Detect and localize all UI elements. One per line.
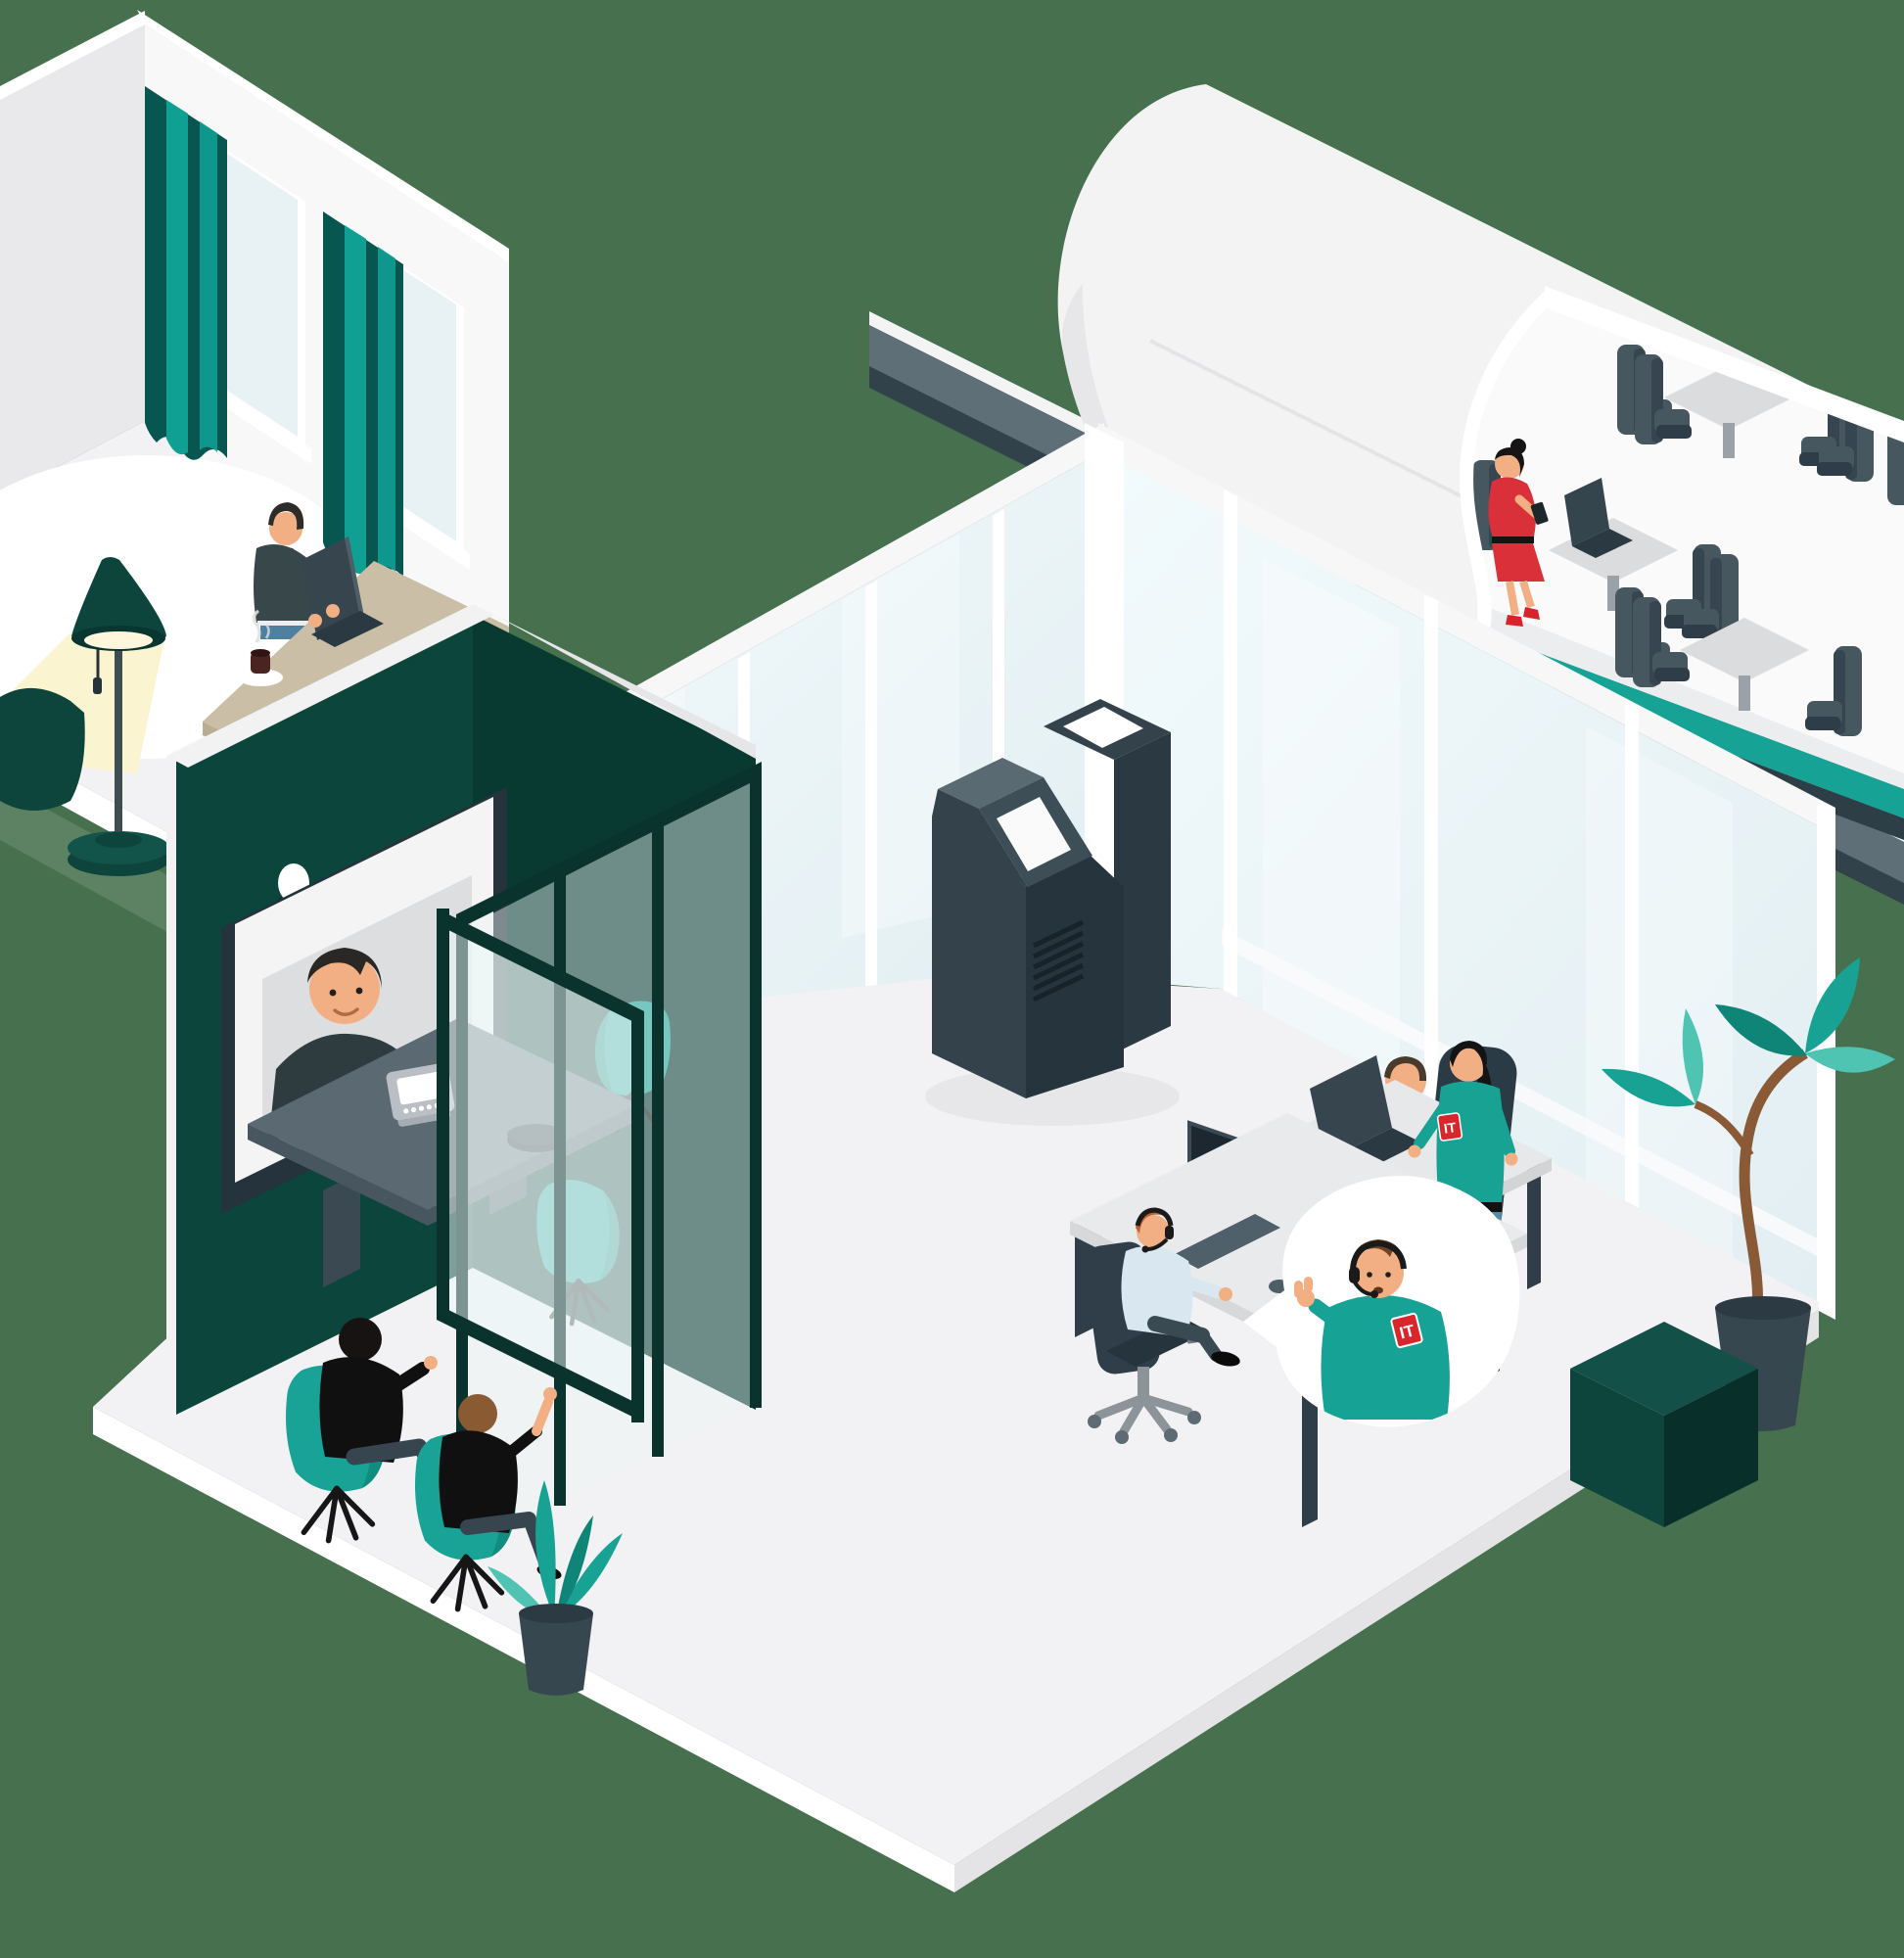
cup-top [251,649,270,657]
home-left-wall [0,18,145,497]
door-stile [631,1011,644,1422]
plant-pot-rim [1715,1296,1811,1320]
it-agent-mic-tip [1370,1290,1378,1298]
home-worker-belt [257,621,308,626]
lamp-base-cap [95,832,142,848]
home-worker-hand [308,614,322,628]
attendee2-hand [543,1387,557,1401]
lamp-pole [115,641,122,855]
it-agent-eye [1385,1272,1391,1278]
attendee2-thigh [468,1519,529,1527]
partition-post [652,822,664,1457]
plant-pot [519,1613,593,1696]
participant-eye [330,990,337,997]
curtain-fold [166,100,188,454]
agent-headset-earcup [1165,1226,1174,1239]
curtain-fold [378,247,395,572]
it-agent-eye [1367,1272,1372,1278]
curtain-fold [200,121,217,452]
attendee1-head [339,1318,382,1361]
coworker-hand [1409,1145,1421,1158]
lamp-bulb-glow [84,631,153,649]
agent-mic-tip [1142,1246,1149,1253]
it-agent-torso [1321,1295,1449,1420]
it-agent-earcup [1349,1267,1360,1283]
it-badge: IT [1437,1113,1462,1142]
illustration-stage: IT [0,0,1904,1958]
lamp-pull [93,677,102,694]
partition-post [750,773,762,1408]
participant-eye [356,988,363,995]
commuter-belt [1492,536,1534,543]
attendee1-hand [424,1356,438,1370]
door-stile [437,909,449,1320]
attendee1-thigh [354,1447,419,1457]
coworker-hand [1506,1153,1518,1166]
attendee2-head [458,1394,497,1433]
curtain-fold [345,225,366,574]
agent-hand [1219,1287,1232,1301]
home-worker-hand [326,604,340,618]
meeting-room-edge-left [166,756,176,1420]
plant-pot-rim [519,1604,593,1623]
ottoman [0,688,85,811]
